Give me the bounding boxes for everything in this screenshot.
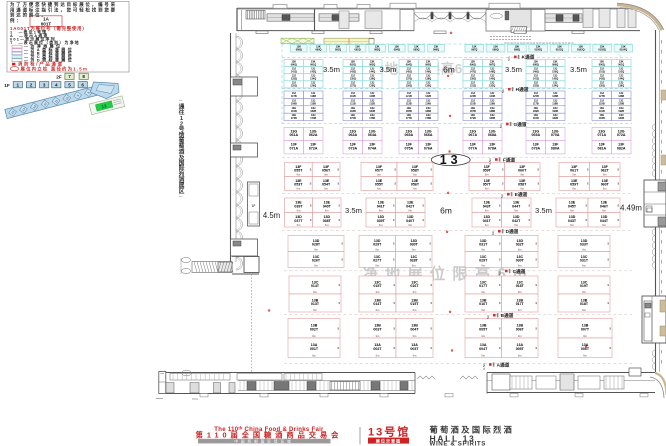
svg-text:096Q: 096Q	[433, 49, 439, 52]
svg-text:007T: 007T	[581, 327, 590, 331]
svg-text:7: 7	[68, 74, 71, 79]
svg-text:120B: 120B	[369, 95, 375, 98]
svg-text:A通道: A通道	[497, 361, 510, 368]
svg-text:141Q: 141Q	[291, 70, 297, 73]
svg-text:004T: 004T	[410, 327, 419, 331]
svg-text:例：: 例：	[10, 17, 23, 24]
svg-text:※: ※	[448, 149, 451, 154]
svg-text:037T: 037T	[294, 219, 303, 223]
svg-text:005T: 005T	[479, 327, 488, 331]
svg-text:128B: 128B	[618, 95, 624, 98]
svg-text:125B: 125B	[533, 95, 539, 98]
svg-text:077A: 077A	[469, 146, 478, 150]
svg-text:188B: 188B	[489, 110, 495, 113]
svg-text:3.5m: 3.5m	[535, 206, 552, 215]
svg-text:0104Q: 0104Q	[620, 49, 628, 52]
svg-text:067A: 067A	[469, 133, 478, 137]
svg-text:6: 6	[81, 83, 84, 88]
svg-text:139Q: 139Q	[470, 78, 476, 81]
svg-text:第110届全国糖酒商品交易会: 第110届全国糖酒商品交易会	[196, 431, 343, 440]
svg-text:1F: 1F	[252, 204, 256, 208]
svg-text:094Q: 094Q	[406, 63, 412, 66]
svg-text:096Q: 096Q	[470, 63, 476, 66]
svg-text:※: ※	[447, 73, 450, 78]
svg-text:2: 2	[30, 83, 33, 88]
svg-text:045T: 045T	[568, 204, 577, 208]
svg-text:6m: 6m	[443, 65, 455, 75]
svg-text:3.5m: 3.5m	[323, 65, 340, 74]
svg-text:068A: 068A	[488, 133, 497, 137]
svg-text:174B: 174B	[310, 117, 316, 120]
svg-text:028T: 028T	[312, 243, 321, 247]
svg-text:060T: 060T	[601, 183, 610, 187]
svg-text:078A: 078A	[488, 146, 497, 150]
svg-text:005T: 005T	[516, 347, 525, 351]
svg-text:1: 1	[17, 83, 20, 88]
svg-text:076A: 076A	[424, 146, 433, 150]
svg-text:018T: 018T	[516, 284, 525, 288]
svg-text:B通道: B通道	[501, 312, 514, 319]
svg-text:030T: 030T	[410, 243, 419, 247]
svg-text:4.49m: 4.49m	[620, 204, 642, 213]
svg-text:043T: 043T	[568, 219, 577, 223]
svg-text:2F: 2F	[56, 75, 62, 81]
svg-text:057T: 057T	[375, 169, 384, 173]
svg-text:081A: 081A	[598, 146, 607, 150]
svg-text:042T: 042T	[406, 204, 415, 208]
svg-text:001Q: 001Q	[618, 63, 624, 66]
svg-text:058T: 058T	[518, 183, 527, 187]
svg-text:062T: 062T	[601, 169, 610, 173]
svg-text:136Q: 136Q	[618, 85, 624, 88]
svg-text:5m: 5m	[486, 314, 490, 319]
svg-text:056T: 056T	[411, 183, 420, 187]
svg-text:133Q: 133Q	[291, 78, 297, 81]
svg-text:180B: 180B	[489, 117, 495, 120]
svg-text:WINE & SPIRITS: WINE & SPIRITS	[430, 440, 487, 446]
svg-text:116B: 116B	[489, 102, 495, 105]
svg-text:123B: 123B	[470, 95, 476, 98]
svg-text:展位内立柱 直径约为1.5m: 展位内立柱 直径约为1.5m	[21, 65, 89, 72]
svg-text:151Q: 151Q	[599, 70, 605, 73]
svg-text:136Q: 136Q	[369, 78, 375, 81]
svg-text:181B: 181B	[533, 117, 539, 120]
svg-text:118B: 118B	[310, 95, 316, 98]
svg-text:※: ※	[449, 113, 452, 118]
svg-text:←: ←	[178, 194, 183, 200]
svg-text:042T: 042T	[512, 219, 521, 223]
svg-text:0102Q: 0102Q	[577, 49, 585, 52]
svg-text:093Q: 093Q	[374, 49, 380, 52]
svg-text:033T: 033T	[580, 243, 589, 247]
svg-text:001T: 001T	[310, 347, 319, 351]
svg-text:039T: 039T	[377, 219, 386, 223]
svg-text:C通道: C通道	[513, 268, 526, 275]
svg-text:145Q: 145Q	[406, 70, 412, 73]
svg-text:5m: 5m	[501, 88, 505, 93]
svg-text:中国西部国际博览城: 中国西部国际博览城	[234, 439, 293, 444]
svg-text:4: 4	[55, 83, 58, 88]
svg-text:115B: 115B	[470, 102, 476, 105]
svg-text:071A: 071A	[598, 133, 607, 137]
svg-text:072A: 072A	[617, 133, 626, 137]
svg-text:002T: 002T	[310, 327, 319, 331]
svg-text:003T: 003T	[410, 347, 419, 351]
svg-text:099Q: 099Q	[552, 63, 558, 66]
svg-text:184B: 184B	[369, 110, 375, 113]
svg-text:000Q: 000Q	[599, 63, 605, 66]
svg-text:D通道: D通道	[506, 228, 519, 235]
svg-text:※: ※	[449, 309, 452, 314]
svg-text:134Q: 134Q	[552, 85, 558, 88]
svg-text:006T: 006T	[516, 327, 525, 331]
svg-text:3.5m: 3.5m	[488, 157, 492, 164]
svg-text:120B: 120B	[618, 102, 624, 105]
svg-text:090Q: 090Q	[291, 63, 297, 66]
svg-text:026T: 026T	[312, 259, 321, 263]
svg-text:089Q: 089Q	[296, 49, 302, 52]
svg-text:3.5m: 3.5m	[345, 206, 362, 215]
svg-text:3.5m: 3.5m	[570, 65, 587, 74]
svg-text:142Q: 142Q	[310, 70, 316, 73]
svg-text:147Q: 147Q	[470, 70, 476, 73]
svg-text:055T: 055T	[375, 183, 384, 187]
svg-text:125Q: 125Q	[291, 85, 297, 88]
svg-text:046T: 046T	[600, 204, 609, 208]
svg-text:110B: 110B	[310, 102, 316, 105]
svg-text:0100Q: 0100Q	[534, 49, 542, 52]
svg-text:140Q: 140Q	[489, 78, 495, 81]
svg-text:119B: 119B	[599, 102, 605, 105]
svg-text:113B: 113B	[406, 102, 412, 105]
svg-text:013T: 013T	[311, 302, 320, 306]
svg-text:150Q: 150Q	[552, 70, 558, 73]
svg-text:133Q: 133Q	[533, 85, 539, 88]
svg-text:097Q: 097Q	[471, 49, 477, 52]
svg-text:149Q: 149Q	[533, 70, 539, 73]
svg-text:018T: 018T	[580, 302, 589, 306]
svg-text:079A: 079A	[532, 146, 541, 150]
svg-text:126B: 126B	[552, 95, 558, 98]
svg-text:8: 8	[82, 74, 85, 79]
svg-text:13: 13	[440, 153, 462, 167]
svg-text:182B: 182B	[552, 117, 558, 120]
svg-text:178B: 178B	[425, 117, 431, 120]
svg-text:5m: 5m	[500, 193, 504, 198]
svg-text:5: 5	[68, 83, 71, 88]
svg-text:E通道: E通道	[515, 191, 528, 198]
svg-text:185B: 185B	[406, 110, 412, 113]
svg-text:040T: 040T	[406, 219, 415, 223]
svg-text:13号馆: 13号馆	[368, 424, 410, 438]
svg-text:061T: 061T	[570, 169, 579, 173]
svg-text:099Q: 099Q	[514, 49, 520, 52]
svg-text:062A: 062A	[309, 133, 318, 137]
svg-text:095Q: 095Q	[413, 49, 419, 52]
svg-text:109B: 109B	[291, 102, 297, 105]
svg-text:041T: 041T	[483, 219, 492, 223]
svg-text:183B: 183B	[350, 110, 356, 113]
svg-text:183B: 183B	[599, 117, 605, 120]
svg-text:0101Q: 0101Q	[556, 49, 564, 52]
svg-text:152Q: 152Q	[618, 70, 624, 73]
svg-text:016T: 016T	[410, 284, 419, 288]
svg-text:124B: 124B	[489, 95, 495, 98]
svg-text:F通道: F通道	[503, 156, 516, 163]
svg-text:176B: 176B	[369, 117, 375, 120]
svg-text:014T: 014T	[373, 302, 382, 306]
svg-text:3.5m: 3.5m	[380, 65, 397, 74]
svg-text:114B: 114B	[425, 102, 431, 105]
svg-text:003T: 003T	[373, 327, 382, 331]
svg-text:181B: 181B	[291, 110, 297, 113]
svg-text:060T: 060T	[518, 169, 527, 173]
svg-text:058T: 058T	[411, 169, 420, 173]
svg-text:3: 3	[43, 83, 46, 88]
svg-text:190B: 190B	[552, 110, 558, 113]
svg-text:031T: 031T	[479, 243, 488, 247]
svg-text:028T: 028T	[410, 259, 419, 263]
svg-text:097Q: 097Q	[489, 63, 495, 66]
svg-text:175B: 175B	[350, 117, 356, 120]
svg-text:056T: 056T	[322, 169, 331, 173]
svg-text:6.5m: 6.5m	[482, 362, 486, 369]
svg-text:179B: 179B	[470, 117, 476, 120]
svg-text:040T: 040T	[323, 204, 332, 208]
svg-text:144Q: 144Q	[618, 78, 624, 81]
svg-text:002T: 002T	[373, 347, 382, 351]
svg-text:072A: 072A	[309, 146, 318, 150]
svg-text:032T: 032T	[516, 243, 525, 247]
svg-text:H通道: H通道	[516, 86, 529, 93]
svg-text:043T: 043T	[483, 204, 492, 208]
svg-text:132Q: 132Q	[489, 85, 495, 88]
svg-text:092Q: 092Q	[355, 49, 361, 52]
svg-text:044T: 044T	[600, 219, 609, 223]
svg-text:030T: 030T	[516, 259, 525, 263]
svg-text:189B: 189B	[533, 110, 539, 113]
svg-text:054T: 054T	[322, 183, 331, 187]
svg-text:※: ※	[447, 190, 450, 195]
svg-text:095Q: 095Q	[425, 63, 431, 66]
svg-text:055T: 055T	[294, 169, 303, 173]
svg-text:031T: 031T	[580, 259, 589, 263]
svg-text:※: ※	[268, 308, 271, 313]
svg-text:082A: 082A	[617, 146, 626, 150]
svg-text:144Q: 144Q	[369, 70, 375, 73]
svg-text:143Q: 143Q	[599, 78, 605, 81]
svg-text:069A: 069A	[532, 133, 541, 137]
svg-text:137Q: 137Q	[406, 78, 412, 81]
svg-text:066A: 066A	[424, 133, 433, 137]
svg-text:※: ※	[585, 344, 588, 349]
svg-text:041T: 041T	[377, 204, 386, 208]
svg-text:122B: 122B	[425, 95, 431, 98]
svg-text:059T: 059T	[570, 183, 579, 187]
svg-text:G通道: G通道	[513, 121, 526, 128]
svg-text:0103Q: 0103Q	[598, 49, 606, 52]
svg-text:057T: 057T	[483, 183, 492, 187]
svg-text:090Q: 090Q	[315, 49, 321, 52]
svg-text:014T: 014T	[311, 284, 320, 288]
svg-text:5m: 5m	[507, 56, 511, 61]
svg-text:135Q: 135Q	[350, 78, 356, 81]
svg-text:091Q: 091Q	[310, 63, 316, 66]
svg-text:016T: 016T	[479, 302, 488, 306]
svg-text:017T: 017T	[516, 302, 525, 306]
svg-text:187B: 187B	[470, 110, 476, 113]
svg-text:073A: 073A	[349, 146, 358, 150]
svg-text:098Q: 098Q	[493, 49, 499, 52]
svg-text:4.5m: 4.5m	[263, 211, 280, 220]
svg-text:※: ※	[446, 229, 449, 234]
svg-text:064A: 064A	[368, 133, 377, 137]
svg-text:093Q: 093Q	[369, 63, 375, 66]
svg-text:127B: 127B	[599, 95, 605, 98]
svg-text:092Q: 092Q	[350, 63, 356, 66]
svg-text:019T: 019T	[580, 284, 589, 288]
svg-text:※: ※	[450, 30, 453, 35]
svg-text:015T: 015T	[410, 302, 419, 306]
svg-text:117B: 117B	[533, 102, 539, 105]
svg-text:5m: 5m	[499, 123, 503, 128]
svg-text:071A: 071A	[290, 146, 299, 150]
svg-text:142Q: 142Q	[552, 78, 558, 81]
svg-text:004T: 004T	[479, 347, 488, 351]
svg-text:044T: 044T	[512, 204, 521, 208]
svg-text:017T: 017T	[479, 284, 488, 288]
svg-text:015T: 015T	[373, 284, 382, 288]
svg-text:075A: 075A	[405, 146, 414, 150]
svg-text:117B: 117B	[291, 95, 297, 98]
svg-text:039T: 039T	[294, 204, 303, 208]
svg-text:070A: 070A	[551, 133, 560, 137]
svg-text:184B: 184B	[618, 117, 624, 120]
svg-text:※: ※	[451, 348, 454, 353]
svg-text:192B: 192B	[618, 110, 624, 113]
svg-text:065A: 065A	[405, 133, 414, 137]
svg-text:182B: 182B	[310, 110, 316, 113]
svg-text:038T: 038T	[323, 219, 332, 223]
svg-text:148Q: 148Q	[489, 70, 495, 73]
svg-text:126Q: 126Q	[310, 85, 316, 88]
svg-text:K通道: K通道	[522, 54, 535, 61]
svg-text:074A: 074A	[368, 146, 377, 150]
svg-text:3.5m: 3.5m	[505, 65, 522, 74]
svg-text:121B: 121B	[406, 95, 412, 98]
svg-text:127Q: 127Q	[350, 85, 356, 88]
svg-text:059T: 059T	[483, 169, 492, 173]
svg-text:135Q: 135Q	[599, 85, 605, 88]
svg-text:053T: 053T	[294, 183, 303, 187]
svg-text:129Q: 129Q	[406, 85, 412, 88]
svg-text:138Q: 138Q	[425, 78, 431, 81]
svg-text:111B: 111B	[350, 102, 356, 105]
svg-text:6m: 6m	[440, 206, 452, 216]
svg-text:128Q: 128Q	[369, 85, 375, 88]
svg-text:177B: 177B	[406, 117, 412, 120]
svg-text:118B: 118B	[552, 102, 558, 105]
svg-text:098Q: 098Q	[533, 63, 539, 66]
svg-text:141Q: 141Q	[533, 78, 539, 81]
svg-text:173B: 173B	[291, 117, 297, 120]
svg-text:080A: 080A	[551, 146, 560, 150]
svg-text:119B: 119B	[350, 95, 356, 98]
svg-text:130Q: 130Q	[425, 85, 431, 88]
svg-text:5m: 5m	[498, 270, 502, 275]
svg-text:1F: 1F	[4, 83, 10, 89]
svg-text:←: ←	[178, 97, 183, 103]
svg-text:063A: 063A	[349, 133, 358, 137]
svg-text:展位示意图: 展位示意图	[376, 437, 401, 443]
svg-text:191B: 191B	[599, 110, 605, 113]
svg-text:143Q: 143Q	[350, 70, 356, 73]
svg-text:6m: 6m	[491, 230, 495, 235]
svg-text:027T: 027T	[373, 259, 382, 263]
svg-text:029T: 029T	[479, 259, 488, 263]
svg-text:134Q: 134Q	[310, 78, 316, 81]
svg-text:112B: 112B	[369, 102, 375, 105]
svg-text:146Q: 146Q	[425, 70, 431, 73]
svg-text:186B: 186B	[425, 110, 431, 113]
svg-text:061A: 061A	[290, 133, 299, 137]
svg-text:131Q: 131Q	[470, 85, 476, 88]
svg-text:094Q: 094Q	[394, 49, 400, 52]
svg-text:091Q: 091Q	[335, 49, 341, 52]
svg-text:029T: 029T	[373, 243, 382, 247]
